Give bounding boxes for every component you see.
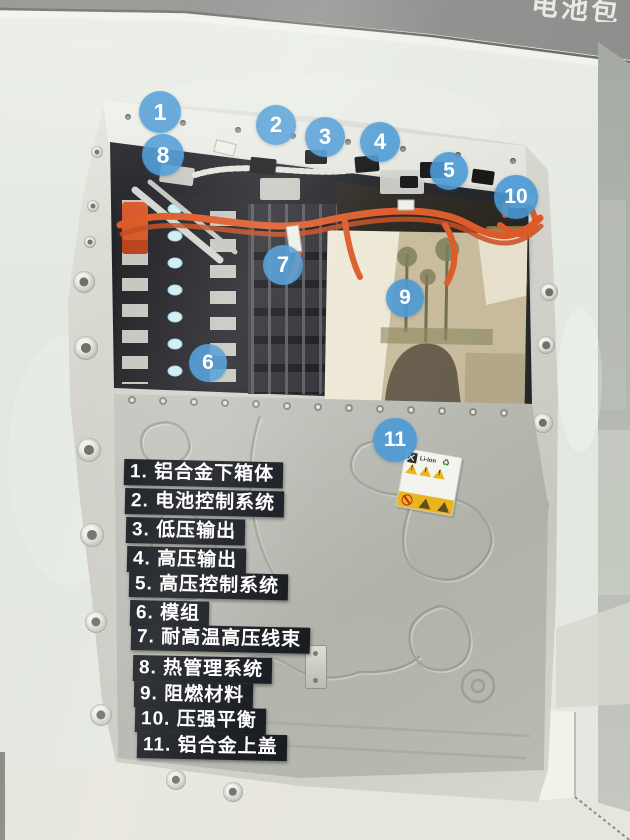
bolt-hole	[537, 336, 555, 354]
legend-item: 10. 压强平衡	[135, 706, 266, 735]
screw	[125, 114, 131, 120]
bolt-hole	[166, 770, 186, 790]
callout-7: 7	[263, 245, 303, 285]
bolt-hole	[74, 336, 98, 360]
callout-11: 11	[373, 418, 417, 462]
legend-item: 4. 高压输出	[127, 546, 247, 574]
legend-item: 5. 高压控制系统	[129, 571, 289, 600]
callout-6: 6	[189, 344, 227, 382]
callout-9: 9	[386, 279, 424, 317]
bolt-hole	[73, 271, 95, 293]
legend-item: 1. 铝合金下箱体	[124, 459, 284, 488]
screw	[376, 405, 384, 413]
screw	[438, 407, 446, 415]
callout-1: 1	[139, 91, 181, 133]
legend-item: 2. 电池控制系统	[125, 488, 285, 517]
bolt-hole	[90, 704, 112, 726]
bolt-hole	[223, 782, 243, 802]
legend-item: 3. 低压输出	[126, 517, 246, 545]
screw	[345, 404, 353, 412]
callout-8: 8	[142, 134, 184, 176]
legend-item: 7. 耐高温高压线束	[131, 624, 311, 654]
wall-sign-partial-text: 电池包	[530, 0, 630, 22]
battery-type-label: Li-Ion	[419, 456, 436, 465]
screw	[407, 406, 415, 414]
callout-2: 2	[256, 105, 296, 145]
legend-item: 11. 铝合金上盖	[137, 732, 287, 761]
callout-5: 5	[430, 152, 468, 190]
bolt-hole	[80, 523, 104, 547]
battery-pack-exhibit-photo: 电池包	[0, 0, 630, 840]
screw	[128, 396, 136, 404]
bolt-hole	[87, 200, 99, 212]
bolt-hole	[77, 438, 101, 462]
screw	[314, 403, 322, 411]
callout-3: 3	[305, 117, 345, 157]
callout-4: 4	[360, 122, 400, 162]
legend-item: 9. 阻燃材料	[134, 681, 254, 709]
bolt-hole	[85, 611, 107, 633]
screw	[283, 402, 291, 410]
recycle-icon: ♻	[438, 457, 451, 470]
bolt-hole	[84, 236, 96, 248]
no-fire-icon	[400, 494, 413, 507]
legend-item: 8. 热管理系统	[133, 655, 273, 684]
callout-10: 10	[494, 175, 538, 219]
person-silhouette-reflection	[384, 343, 462, 409]
